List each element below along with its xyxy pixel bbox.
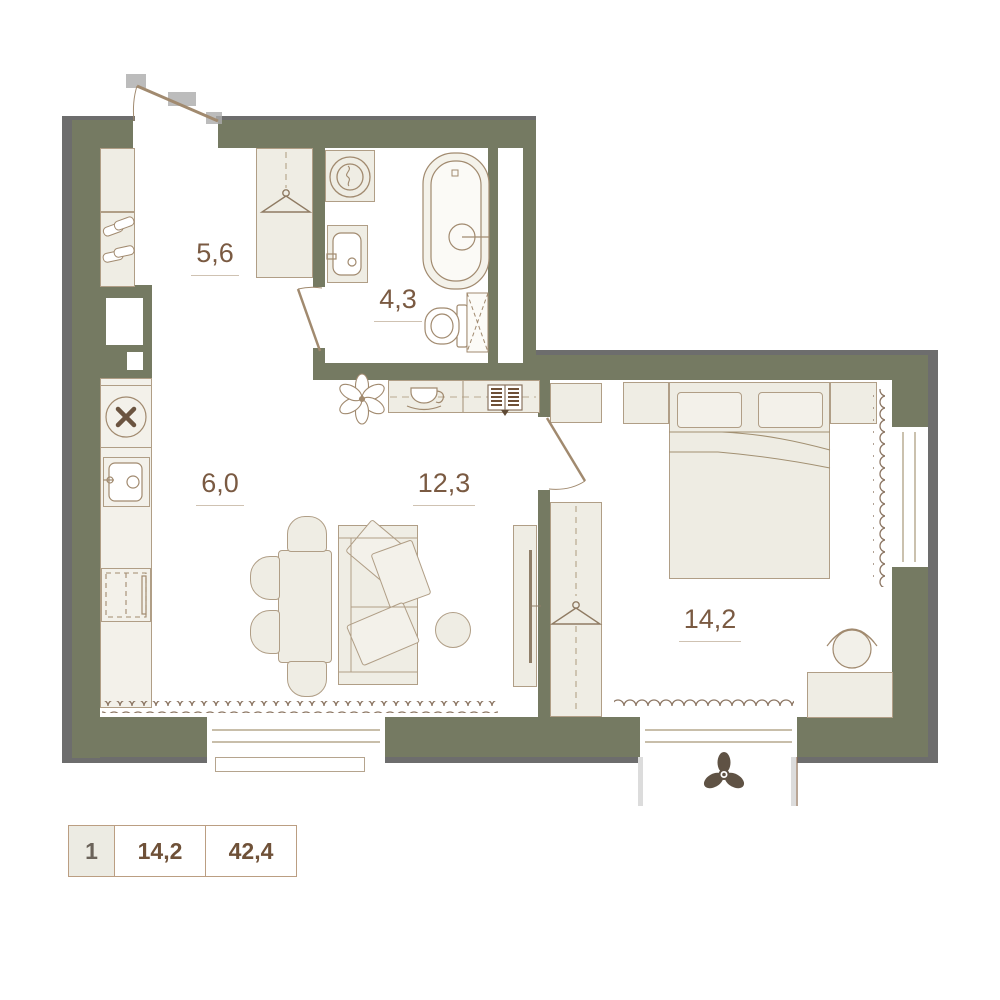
sofa-lines — [338, 538, 418, 672]
bedroom-door-arc — [549, 481, 585, 489]
entry-door-leaf — [137, 86, 218, 121]
bed-sheet-lines — [669, 432, 830, 468]
bathtub-icon — [423, 153, 489, 289]
entry-landing-mark — [126, 74, 146, 88]
legend-table: 1 14,2 42,4 — [68, 825, 297, 877]
desk-chair-icon — [827, 629, 877, 668]
plant-icon — [337, 374, 387, 424]
washing-machine-icon — [330, 157, 370, 197]
duct-hatch-icon — [467, 293, 488, 352]
toilet-icon — [425, 305, 467, 347]
bedroom-wardrobe-hanger-icon — [552, 506, 600, 713]
floor-plan: 5,6 4,3 6,0 12,3 14,2 — [0, 0, 1000, 1000]
window-frames — [212, 432, 915, 742]
bathroom-door-leaf — [298, 289, 320, 351]
bathroom-sink-icon — [327, 233, 361, 275]
hall-wardrobe-hanger-icon — [262, 152, 310, 212]
fan-icon — [701, 752, 746, 791]
legend-rooms-count: 1 — [68, 825, 115, 877]
legend-living-area: 14,2 — [114, 825, 206, 877]
coffee-cup-icon — [407, 388, 443, 410]
bedroom-door-leaf — [547, 418, 585, 481]
entry-door-arc — [133, 86, 137, 121]
bedroom-door — [547, 418, 585, 489]
kitchen-sink-icon — [103, 463, 142, 501]
legend-total-area: 42,4 — [205, 825, 297, 877]
bathroom-door — [298, 287, 322, 351]
stove-icon — [106, 397, 146, 437]
bathroom-door-arc — [298, 287, 322, 289]
radiator-wave-bedroom — [614, 699, 794, 711]
entry-door — [126, 74, 222, 124]
curtain-wave-bedroom — [873, 389, 885, 587]
radiator-wave-living — [102, 701, 498, 713]
open-book-icon — [488, 385, 522, 416]
fridge-icon — [106, 573, 146, 617]
shoe-rack-icon — [102, 216, 135, 263]
